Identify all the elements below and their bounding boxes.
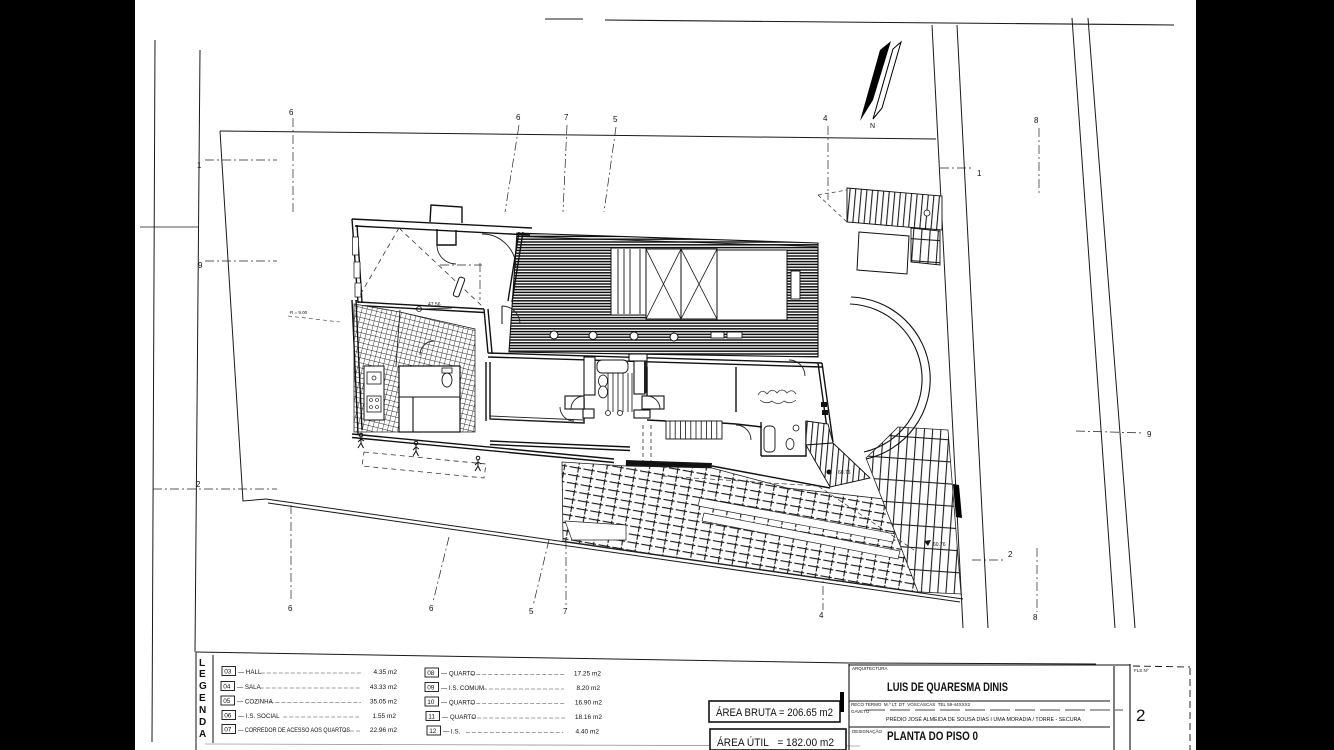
svg-text:— QUARTO: — QUARTO — [441, 700, 475, 707]
svg-text:17.25 m2: 17.25 m2 — [574, 671, 601, 678]
svg-text:4: 4 — [819, 611, 824, 620]
svg-text:— QUARTO: — QUARTO — [441, 671, 475, 678]
svg-text:4.40 m2: 4.40 m2 — [576, 729, 600, 736]
svg-text:R = 9.00: R = 9.00 — [290, 310, 308, 315]
svg-text:07: 07 — [224, 727, 232, 734]
svg-text:LUIS DE QUARESMA DINIS: LUIS DE QUARESMA DINIS — [887, 680, 1008, 694]
svg-text:60.76: 60.76 — [933, 542, 946, 548]
svg-text:— COZINHA: — COZINHA — [237, 699, 274, 706]
svg-text:03: 03 — [224, 669, 232, 676]
svg-text:FLS Nº: FLS Nº — [1134, 668, 1149, 673]
svg-text:09: 09 — [427, 685, 435, 692]
svg-text:PLANTA DO PISO 0: PLANTA DO PISO 0 — [887, 731, 978, 743]
svg-text:08: 08 — [427, 670, 435, 677]
svg-text:7: 7 — [563, 607, 568, 616]
svg-text:— CORREDOR DE ACESSO AOS QUART: — CORREDOR DE ACESSO AOS QUARTOS — [238, 727, 350, 734]
svg-text:43.33 m2: 43.33 m2 — [370, 684, 397, 691]
svg-text:47.56: 47.56 — [428, 302, 441, 308]
svg-text:22.96 m2: 22.96 m2 — [370, 727, 397, 734]
svg-text:ÁREA ÚTIL = 182.00 m2: ÁREA ÚTIL = 182.00 m2 — [717, 736, 834, 749]
svg-text:6: 6 — [288, 604, 293, 613]
svg-text:2: 2 — [1008, 550, 1013, 559]
svg-text:9: 9 — [198, 261, 203, 270]
svg-text:G: G — [199, 681, 207, 692]
svg-text:6: 6 — [289, 108, 294, 117]
svg-text:— I.S. SOCIAL: — I.S. SOCIAL — [238, 713, 280, 720]
svg-text:2: 2 — [1136, 706, 1145, 725]
svg-text:E: E — [199, 693, 206, 704]
svg-text:N: N — [199, 705, 206, 716]
svg-text:1: 1 — [197, 161, 202, 170]
svg-text:— I.S. COMUM: — I.S. COMUM — [441, 685, 484, 692]
svg-text:12: 12 — [429, 728, 437, 735]
svg-text:RECO TERMO M.º LT. DT VOSCAS: RECO TERMO M.º LT. DT VOSCASCAS TEL 59-4… — [851, 702, 971, 707]
svg-text:1.55 m2: 1.55 m2 — [373, 713, 397, 720]
svg-text:16.90 m2: 16.90 m2 — [575, 700, 602, 707]
svg-text:60.76: 60.76 — [838, 470, 851, 476]
svg-text:06: 06 — [224, 713, 232, 720]
svg-text:8: 8 — [1033, 613, 1038, 622]
svg-text:ARQUITECTURA: ARQUITECTURA — [852, 666, 888, 671]
svg-text:18.16 m2: 18.16 m2 — [575, 714, 602, 721]
svg-text:6: 6 — [516, 113, 521, 122]
svg-text:DESIGNAÇÃO: DESIGNAÇÃO — [852, 728, 883, 734]
svg-text:D: D — [199, 717, 206, 728]
svg-text:L: L — [199, 658, 205, 669]
svg-text:5: 5 — [613, 115, 618, 124]
svg-text:05: 05 — [223, 698, 231, 705]
svg-text:04: 04 — [223, 684, 231, 691]
svg-text:N: N — [870, 123, 875, 130]
svg-text:10: 10 — [427, 699, 435, 706]
svg-text:— HALL: — HALL — [238, 669, 262, 676]
svg-text:— I.S.: — I.S. — [443, 729, 460, 736]
svg-text:2: 2 — [196, 480, 201, 489]
svg-text:1: 1 — [977, 169, 982, 178]
svg-text:9: 9 — [1147, 430, 1152, 439]
svg-text:ÁREA BRUTA = 206.65 m2: ÁREA BRUTA = 206.65 m2 — [716, 706, 833, 719]
svg-text:4.35 m2: 4.35 m2 — [374, 669, 398, 676]
svg-text:35.05 m2: 35.05 m2 — [370, 699, 397, 706]
svg-text:PRÉDIO JOSÉ ALMEIDA DE SOUSA D: PRÉDIO JOSÉ ALMEIDA DE SOUSA DIAS I UMA … — [886, 716, 1081, 723]
svg-text:— SALA: — SALA — [237, 684, 262, 691]
svg-text:7: 7 — [564, 113, 569, 122]
svg-text:4: 4 — [823, 114, 828, 123]
svg-text:GAVETO: GAVETO — [851, 709, 870, 714]
svg-text:A: A — [199, 729, 206, 740]
svg-text:E: E — [199, 669, 206, 680]
svg-text:5: 5 — [529, 607, 534, 616]
svg-text:8.20 m2: 8.20 m2 — [577, 685, 601, 692]
svg-text:6: 6 — [429, 604, 434, 613]
svg-text:— QUARTO: — QUARTO — [442, 714, 476, 721]
svg-text:8: 8 — [1034, 116, 1039, 125]
svg-text:11: 11 — [428, 714, 435, 721]
